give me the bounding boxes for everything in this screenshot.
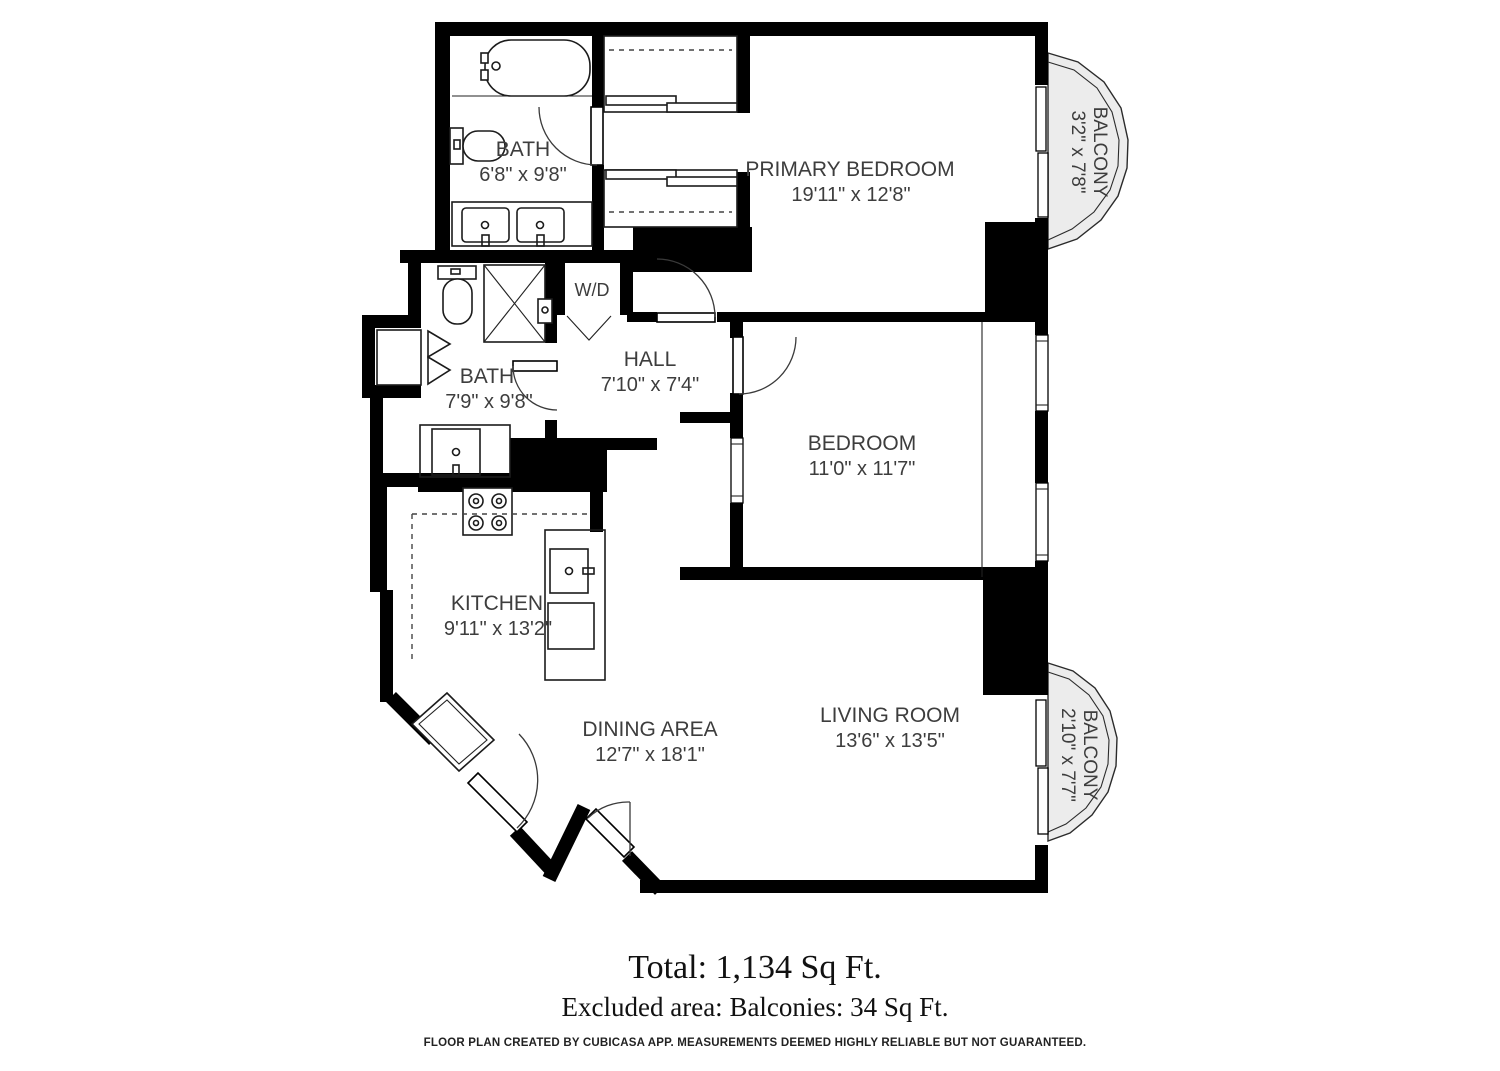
wd-bifold-door: [567, 316, 611, 340]
room-dims-bath-mid: 7'9" x 9'8": [445, 391, 532, 413]
room-dims-bath-top: 6'8" x 9'8": [479, 164, 566, 186]
interior-window: [731, 438, 743, 503]
bathtub: [452, 40, 592, 96]
excluded-area-text: Excluded area: Balconies: 34 Sq Ft.: [562, 992, 949, 1022]
toilet-2: [438, 266, 476, 324]
balcony-top-sliding-door: [1036, 87, 1048, 217]
stove: [463, 488, 512, 535]
room-dims-bedroom: 11'0" x 11'7": [809, 458, 916, 480]
balcony-bottom-sliding-door: [1036, 700, 1048, 834]
room-label-kitchen: KITCHEN: [451, 592, 543, 615]
entry-angled-window: [412, 693, 494, 771]
room-label-balcony-top: BALCONY: [1089, 107, 1110, 198]
bathroom-sink: [420, 425, 510, 477]
room-dims-dining: 12'7" x 18'1": [595, 744, 705, 766]
fixtures-layer: [377, 36, 982, 680]
room-dims-primary-bedroom: 19'11" x 12'8": [791, 184, 910, 206]
double-vanity: [452, 202, 592, 246]
linen-closet: [377, 330, 421, 385]
room-dims-balcony-bottom: 2'10" x 7'7": [1057, 708, 1078, 802]
bedroom-door: [733, 337, 796, 394]
room-dims-hall: 7'10" x 7'4": [601, 374, 700, 396]
bedroom-window: [1036, 483, 1048, 561]
room-dims-balcony-top: 3'2" x 7'8": [1067, 110, 1088, 193]
linen-closet-bifold-door: [428, 331, 450, 384]
summary-block: Total: 1,134 Sq Ft. Excluded area: Balco…: [424, 949, 1087, 1049]
footer-disclaimer: FLOOR PLAN CREATED BY CUBICASA APP. MEAS…: [424, 1037, 1087, 1049]
closet-top: [604, 36, 737, 112]
room-label-living: LIVING ROOM: [820, 704, 960, 727]
room-dims-living: 13'6" x 13'5": [835, 730, 945, 752]
room-label-hall: HALL: [624, 348, 677, 371]
room-label-primary-bedroom: PRIMARY BEDROOM: [745, 158, 954, 181]
room-label-balcony-bottom: BALCONY: [1079, 710, 1100, 801]
floor-plan-page: BATH 6'8" x 9'8" PRIMARY BEDROOM 19'11" …: [0, 0, 1500, 1071]
floor-plan-svg: BATH 6'8" x 9'8" PRIMARY BEDROOM 19'11" …: [0, 0, 1500, 1071]
room-label-bedroom: BEDROOM: [808, 432, 917, 455]
room-label-bath-mid: BATH: [460, 365, 514, 388]
shower: [484, 265, 552, 342]
room-label-dining: DINING AREA: [582, 718, 717, 741]
kitchen-counter: [545, 530, 605, 680]
total-area-text: Total: 1,134 Sq Ft.: [628, 949, 882, 986]
room-label-bath-top: BATH: [496, 138, 550, 161]
room-dims-kitchen: 9'11" x 13'2": [444, 618, 552, 640]
bedroom-window: [1036, 335, 1048, 411]
room-label-wd: W/D: [575, 280, 610, 300]
closet-bottom: [604, 170, 737, 227]
entry-door-2: [586, 802, 634, 857]
